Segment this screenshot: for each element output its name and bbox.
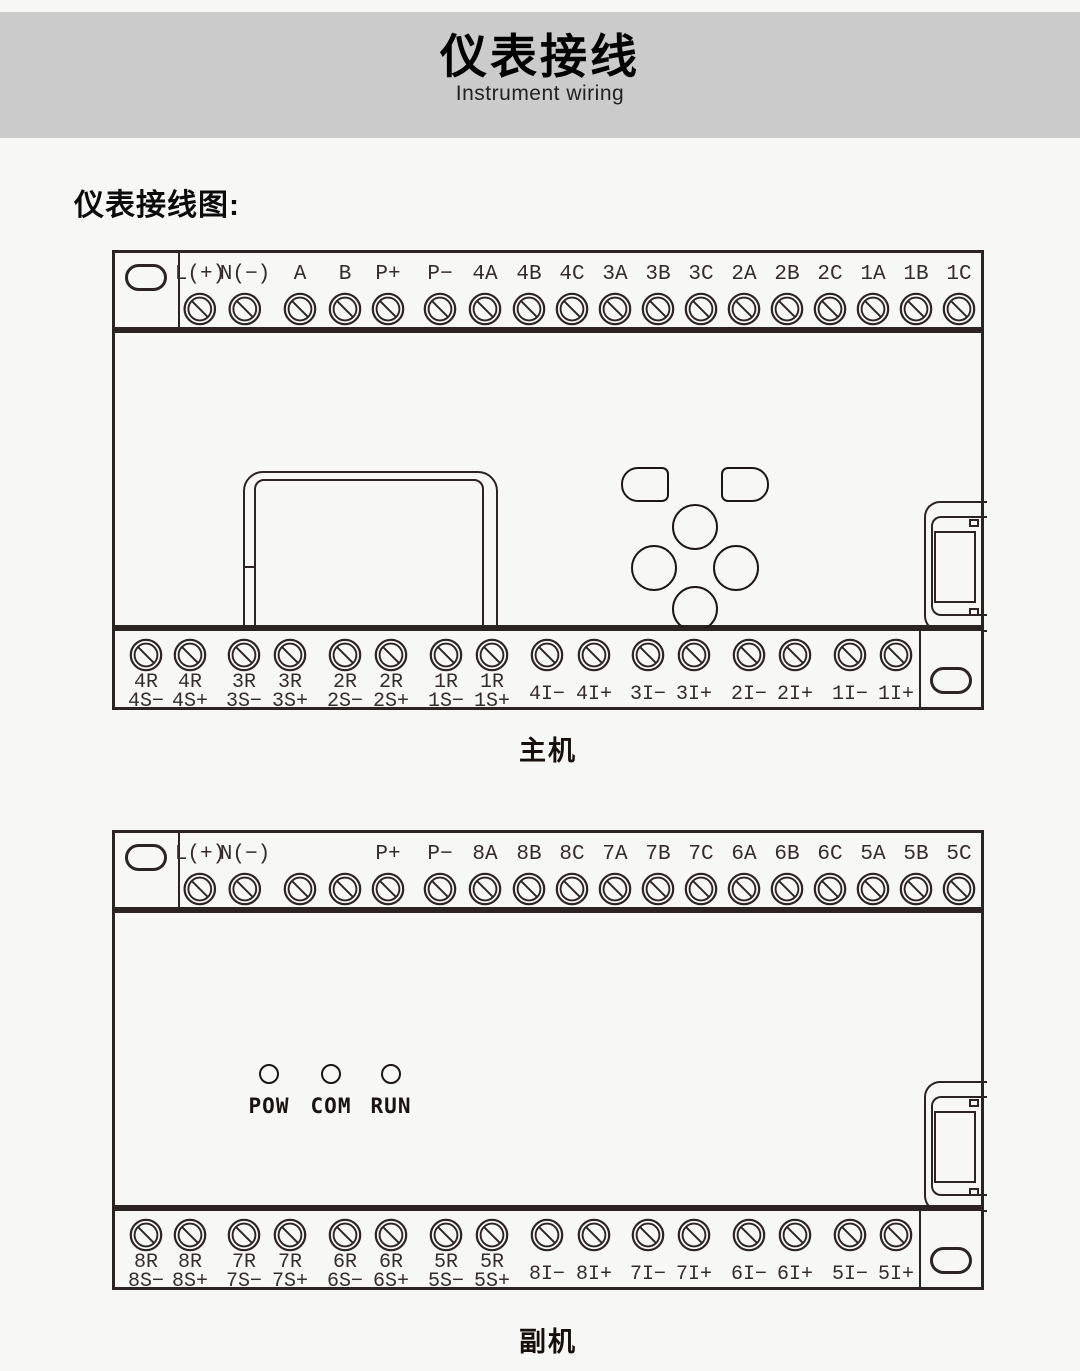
terminal: 8I+ [576, 1218, 612, 1284]
screw-terminal-icon [227, 638, 261, 672]
banner-subtitle: Instrument wiring [0, 82, 1080, 106]
terminal-label: 2I− [731, 685, 767, 704]
terminal-label: A [294, 258, 307, 292]
terminal-label: 6B [774, 838, 799, 872]
screw-terminal-icon [899, 872, 933, 906]
screw-terminal-icon [328, 872, 362, 906]
terminal: 4C [555, 258, 589, 326]
terminal-label: L(+) [175, 258, 225, 292]
terminal-label: 4I− [529, 685, 565, 704]
terminal: 2C [813, 258, 847, 326]
terminal: P+ [371, 838, 405, 906]
terminal: 2I− [731, 638, 767, 704]
led-pow-icon [259, 1064, 279, 1084]
terminal: 7I+ [676, 1218, 712, 1284]
terminal-label: 3C [688, 258, 713, 292]
terminal: N(−) [220, 258, 270, 326]
terminal: 7R7S− [226, 1218, 262, 1291]
led-indicator-group: POWCOMRUN [115, 913, 981, 1205]
expansion-connector [924, 1081, 987, 1212]
terminal-label: 6I+ [777, 1265, 813, 1284]
terminal: 3I− [630, 638, 666, 704]
terminal: 8B [512, 838, 546, 906]
terminal-label: 4B [516, 258, 541, 292]
screw-terminal-icon [283, 872, 317, 906]
screw-terminal-icon [770, 292, 804, 326]
terminal-label: 1B [903, 258, 928, 292]
terminal: 3R3S− [226, 638, 262, 711]
terminal: 4I− [529, 638, 565, 704]
terminal: 7R7S+ [272, 1218, 308, 1291]
screw-terminal-icon [423, 872, 457, 906]
terminal: 5C [942, 838, 976, 906]
terminal: 6R6S− [327, 1218, 363, 1291]
terminal: 5I+ [878, 1218, 914, 1284]
terminal: P− [423, 838, 457, 906]
terminal: 3A [598, 258, 632, 326]
terminal [328, 838, 362, 906]
function-key-top-left-icon [621, 467, 669, 502]
sub-bottom-terminal-strip: 8R8S−8R8S+7R7S−7R7S+6R6S−6R6S+5R5S−5R5S+… [112, 1208, 984, 1290]
terminal: 3I+ [676, 638, 712, 704]
terminal: P− [423, 258, 457, 326]
screw-terminal-icon [641, 872, 675, 906]
terminal-label: 7C [688, 838, 713, 872]
screw-terminal-icon [228, 872, 262, 906]
sub-top-terminals: L(+)N(−)P+P−8A8B8C7A7B7C6A6B6C5A5B5C [115, 833, 981, 907]
terminal-label: 1R1S− [428, 673, 464, 711]
screw-terminal-icon [273, 1218, 307, 1252]
terminal-label: 2A [731, 258, 756, 292]
screw-terminal-icon [879, 1218, 913, 1252]
terminal: 5I− [832, 1218, 868, 1284]
screw-terminal-icon [475, 1218, 509, 1252]
connector-tab-icon [969, 608, 979, 616]
screw-terminal-icon [228, 292, 262, 326]
screw-terminal-icon [512, 872, 546, 906]
terminal: B [328, 258, 362, 326]
terminal-label: 8R8S− [128, 1253, 164, 1291]
screw-terminal-icon [173, 1218, 207, 1252]
terminal-label: 8C [559, 838, 584, 872]
connector-tab-icon [969, 519, 979, 527]
terminal-label: 2B [774, 258, 799, 292]
connector-socket [934, 531, 976, 603]
terminal: 3B [641, 258, 675, 326]
screw-terminal-icon [328, 292, 362, 326]
sub-unit-body: POWCOMRUN [112, 910, 984, 1208]
terminal: 8A [468, 838, 502, 906]
terminal-label: 2R2S+ [373, 673, 409, 711]
screw-terminal-icon [530, 1218, 564, 1252]
screw-terminal-icon [129, 1218, 163, 1252]
terminal: 7I− [630, 1218, 666, 1284]
terminal-label: L(+) [175, 838, 225, 872]
terminal-label: N(−) [220, 838, 270, 872]
main-top-terminal-strip: L(+)N(−)ABP+P−4A4B4C3A3B3C2A2B2C1A1B1C [112, 250, 984, 330]
main-bottom-terminal-strip: 4R4S−4R4S+3R3S−3R3S+2R2S−2R2S+1R1S−1R1S+… [112, 628, 984, 710]
terminal-label: 1I+ [878, 685, 914, 704]
terminal: 7A [598, 838, 632, 906]
terminal: P+ [371, 258, 405, 326]
main-unit-body [112, 330, 984, 628]
screw-terminal-icon [631, 1218, 665, 1252]
led-run-icon [381, 1064, 401, 1084]
screw-terminal-icon [677, 638, 711, 672]
led-run-label: RUN [371, 1094, 412, 1118]
screw-terminal-icon [468, 872, 502, 906]
screw-terminal-icon [577, 638, 611, 672]
screw-terminal-icon [833, 638, 867, 672]
main-top-terminals: L(+)N(−)ABP+P−4A4B4C3A3B3C2A2B2C1A1B1C [115, 253, 981, 327]
mount-slot-cell [919, 631, 981, 707]
terminal: 2R2S− [327, 638, 363, 711]
terminal: 1C [942, 258, 976, 326]
nav-key-down-icon [672, 586, 718, 632]
screw-terminal-icon [371, 292, 405, 326]
terminal: 2R2S+ [373, 638, 409, 711]
mount-slot-icon [930, 667, 972, 694]
terminal: 1A [856, 258, 890, 326]
section-heading: 仪表接线图: [74, 180, 240, 224]
screw-terminal-icon [183, 292, 217, 326]
screw-terminal-icon [631, 638, 665, 672]
terminal-label: 7A [602, 838, 627, 872]
screw-terminal-icon [879, 638, 913, 672]
led-com-label: COM [311, 1094, 352, 1118]
led-pow-label: POW [249, 1094, 290, 1118]
terminal-label: 2I+ [777, 685, 813, 704]
screw-terminal-icon [684, 872, 718, 906]
terminal: 6I+ [777, 1218, 813, 1284]
terminal: 1I− [832, 638, 868, 704]
terminal: 8I− [529, 1218, 565, 1284]
terminal: 4R4S− [128, 638, 164, 711]
function-key-top-right-icon [721, 467, 769, 502]
terminal-label: P+ [375, 838, 400, 872]
terminal-label: 7R7S+ [272, 1253, 308, 1291]
terminal: L(+) [175, 838, 225, 906]
terminal: 6A [727, 838, 761, 906]
screw-terminal-icon [555, 872, 589, 906]
terminal-label: 7R7S− [226, 1253, 262, 1291]
main-bottom-terminals: 4R4S−4R4S+3R3S−3R3S+2R2S−2R2S+1R1S−1R1S+… [115, 631, 981, 707]
terminal: 8R8S− [128, 1218, 164, 1291]
sub-top-terminal-strip: L(+)N(−)P+P−8A8B8C7A7B7C6A6B6C5A5B5C [112, 830, 984, 910]
led-com-icon [321, 1064, 341, 1084]
terminal-label: 4C [559, 258, 584, 292]
screw-terminal-icon [273, 638, 307, 672]
screw-terminal-icon [942, 292, 976, 326]
screw-terminal-icon [778, 638, 812, 672]
terminal-label: 2R2S− [327, 673, 363, 711]
terminal-label: P+ [375, 258, 400, 292]
terminal: 6B [770, 838, 804, 906]
terminal-label: 4R4S+ [172, 673, 208, 711]
banner-title: 仪表接线 [0, 28, 1080, 86]
terminal-label: 8B [516, 838, 541, 872]
screw-terminal-icon [173, 638, 207, 672]
main-unit-caption: 主机 [112, 729, 984, 768]
nav-key-left-icon [631, 545, 677, 591]
terminal-label: 8A [472, 838, 497, 872]
screw-terminal-icon [732, 1218, 766, 1252]
screw-terminal-icon [778, 1218, 812, 1252]
screw-terminal-icon [328, 1218, 362, 1252]
terminal-label: 4A [472, 258, 497, 292]
terminal: 8R8S+ [172, 1218, 208, 1291]
terminal-label: 1R1S+ [474, 673, 510, 711]
screw-terminal-icon [423, 292, 457, 326]
nav-key-right-icon [713, 545, 759, 591]
terminal-label: 1I− [832, 685, 868, 704]
terminal-label: 3I+ [676, 685, 712, 704]
screw-terminal-icon [813, 292, 847, 326]
terminal-label: 8I− [529, 1265, 565, 1284]
screw-terminal-icon [598, 292, 632, 326]
terminal-label: 3I− [630, 685, 666, 704]
terminal-label: 6A [731, 838, 756, 872]
terminal: A [283, 258, 317, 326]
terminal: 4A [468, 258, 502, 326]
terminal-label: P− [427, 258, 452, 292]
terminal-label: 2C [817, 258, 842, 292]
terminal: 1R1S− [428, 638, 464, 711]
terminal-label: 3R3S+ [272, 673, 308, 711]
terminal: 1B [899, 258, 933, 326]
screw-terminal-icon [727, 872, 761, 906]
screw-terminal-icon [684, 292, 718, 326]
terminal-label: 5I− [832, 1265, 868, 1284]
screw-terminal-icon [598, 872, 632, 906]
connector-tab-icon [969, 1099, 979, 1107]
screw-terminal-icon [677, 1218, 711, 1252]
main-unit-diagram: L(+)N(−)ABP+P−4A4B4C3A3B3C2A2B2C1A1B1C 4… [112, 250, 984, 710]
screw-terminal-icon [512, 292, 546, 326]
terminal-label: 7B [645, 838, 670, 872]
terminal: 8C [555, 838, 589, 906]
terminal-label: 7I+ [676, 1265, 712, 1284]
terminal: 5B [899, 838, 933, 906]
screw-terminal-icon [555, 292, 589, 326]
terminal-label: 6C [817, 838, 842, 872]
terminal: 7C [684, 838, 718, 906]
terminal-label: N(−) [220, 258, 270, 292]
terminal: 1R1S+ [474, 638, 510, 711]
screw-terminal-icon [813, 872, 847, 906]
screw-terminal-icon [374, 1218, 408, 1252]
screw-terminal-icon [856, 292, 890, 326]
page-banner: 仪表接线 Instrument wiring [0, 12, 1080, 138]
terminal-label: 6I− [731, 1265, 767, 1284]
terminal: 2B [770, 258, 804, 326]
terminal-label: 1A [860, 258, 885, 292]
terminal [283, 838, 317, 906]
terminal-label: 7I− [630, 1265, 666, 1284]
terminal: 3R3S+ [272, 638, 308, 711]
screw-terminal-icon [183, 872, 217, 906]
terminal: 6R6S+ [373, 1218, 409, 1291]
lcd-display-screen [254, 479, 484, 648]
nav-key-up-icon [672, 504, 718, 550]
terminal-label: 8I+ [576, 1265, 612, 1284]
screw-terminal-icon [856, 872, 890, 906]
terminal: 2A [727, 258, 761, 326]
sub-unit-diagram: POWCOMRUN L(+)N(−)P+P−8A8B8C7A7B7C6A6B6C… [112, 830, 984, 1290]
connector-tab-icon [969, 1188, 979, 1196]
terminal: 1I+ [878, 638, 914, 704]
screw-terminal-icon [833, 1218, 867, 1252]
terminal-label: 5A [860, 838, 885, 872]
mount-slot-icon [930, 1247, 972, 1274]
terminal: 4I+ [576, 638, 612, 704]
screw-terminal-icon [129, 638, 163, 672]
terminal: 4B [512, 258, 546, 326]
terminal: 6C [813, 838, 847, 906]
screw-terminal-icon [727, 292, 761, 326]
screw-terminal-icon [641, 292, 675, 326]
screw-terminal-icon [899, 292, 933, 326]
mount-slot-cell [919, 1211, 981, 1287]
screw-terminal-icon [732, 638, 766, 672]
terminal-label: 5R5S− [428, 1253, 464, 1291]
terminal: L(+) [175, 258, 225, 326]
connector-socket [934, 1111, 976, 1183]
terminal: N(−) [220, 838, 270, 906]
terminal-label: 5I+ [878, 1265, 914, 1284]
terminal-label: 3B [645, 258, 670, 292]
terminal-label: 6R6S− [327, 1253, 363, 1291]
terminal: 5A [856, 838, 890, 906]
screw-terminal-icon [283, 292, 317, 326]
terminal: 4R4S+ [172, 638, 208, 711]
screw-terminal-icon [374, 638, 408, 672]
screw-terminal-icon [530, 638, 564, 672]
terminal: 3C [684, 258, 718, 326]
expansion-connector [924, 501, 987, 632]
terminal: 2I+ [777, 638, 813, 704]
terminal-label: 5C [946, 838, 971, 872]
screw-terminal-icon [942, 872, 976, 906]
terminal: 7B [641, 838, 675, 906]
screw-terminal-icon [429, 1218, 463, 1252]
sub-unit-caption: 副机 [112, 1320, 984, 1359]
display-tick [243, 566, 254, 568]
screw-terminal-icon [577, 1218, 611, 1252]
terminal-label: 3A [602, 258, 627, 292]
screw-terminal-icon [371, 872, 405, 906]
terminal-label: 5B [903, 838, 928, 872]
screw-terminal-icon [770, 872, 804, 906]
terminal: 6I− [731, 1218, 767, 1284]
screw-terminal-icon [429, 638, 463, 672]
terminal-label: 3R3S− [226, 673, 262, 711]
screw-terminal-icon [328, 638, 362, 672]
terminal-label: B [339, 258, 352, 292]
terminal: 5R5S+ [474, 1218, 510, 1291]
screw-terminal-icon [227, 1218, 261, 1252]
terminal-label: 4I+ [576, 685, 612, 704]
terminal-label: P− [427, 838, 452, 872]
terminal: 5R5S− [428, 1218, 464, 1291]
terminal-label: 5R5S+ [474, 1253, 510, 1291]
screw-terminal-icon [468, 292, 502, 326]
terminal-label: 4R4S− [128, 673, 164, 711]
terminal-label: 1C [946, 258, 971, 292]
terminal-label: 6R6S+ [373, 1253, 409, 1291]
sub-bottom-terminals: 8R8S−8R8S+7R7S−7R7S+6R6S−6R6S+5R5S−5R5S+… [115, 1211, 981, 1287]
terminal-label: 8R8S+ [172, 1253, 208, 1291]
screw-terminal-icon [475, 638, 509, 672]
